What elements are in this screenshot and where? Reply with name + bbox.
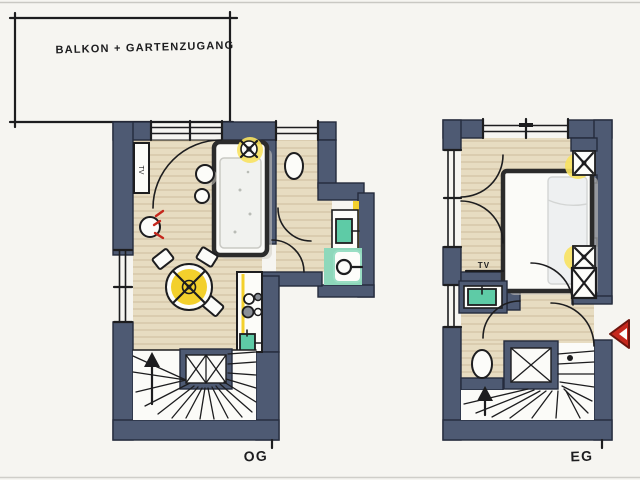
eg-column-cross — [572, 268, 596, 298]
eg-toilet — [472, 350, 492, 378]
eg-window-top — [483, 119, 568, 138]
og-ceiling-lamp-icon — [237, 137, 263, 163]
eg-floor-label: EG — [570, 448, 593, 465]
og-staircase — [133, 349, 256, 420]
plan-og: TV — [113, 121, 374, 464]
og-window-top-right — [276, 121, 318, 140]
og-tv-label: TV — [137, 166, 144, 175]
og-floor-label: OG — [243, 448, 268, 465]
og-toilet — [285, 153, 303, 179]
og-window-left — [114, 250, 132, 322]
scanned-floorplan-page: BALKON + GARTENZUGANG — [0, 0, 640, 480]
plan-eg: TV — [443, 119, 629, 464]
og-vanity-sink — [332, 210, 359, 250]
floorplan-drawing: BALKON + GARTENZUGANG — [0, 0, 640, 480]
og-kitchen — [237, 272, 262, 352]
eg-vanity-sink — [459, 281, 507, 313]
balcony-annotation-box: BALKON + GARTENZUGANG — [10, 12, 237, 139]
eg-window-left-upper — [444, 150, 461, 247]
og-shower — [324, 248, 362, 285]
eg-tv-label: TV — [478, 261, 491, 270]
balcony-label: BALKON + GARTENZUGANG — [55, 40, 234, 57]
eg-entrance-arrow-icon — [610, 320, 629, 348]
og-sideboard: TV — [134, 143, 149, 193]
eg-stair-dot — [567, 355, 573, 361]
og-window-top-left — [151, 121, 222, 140]
